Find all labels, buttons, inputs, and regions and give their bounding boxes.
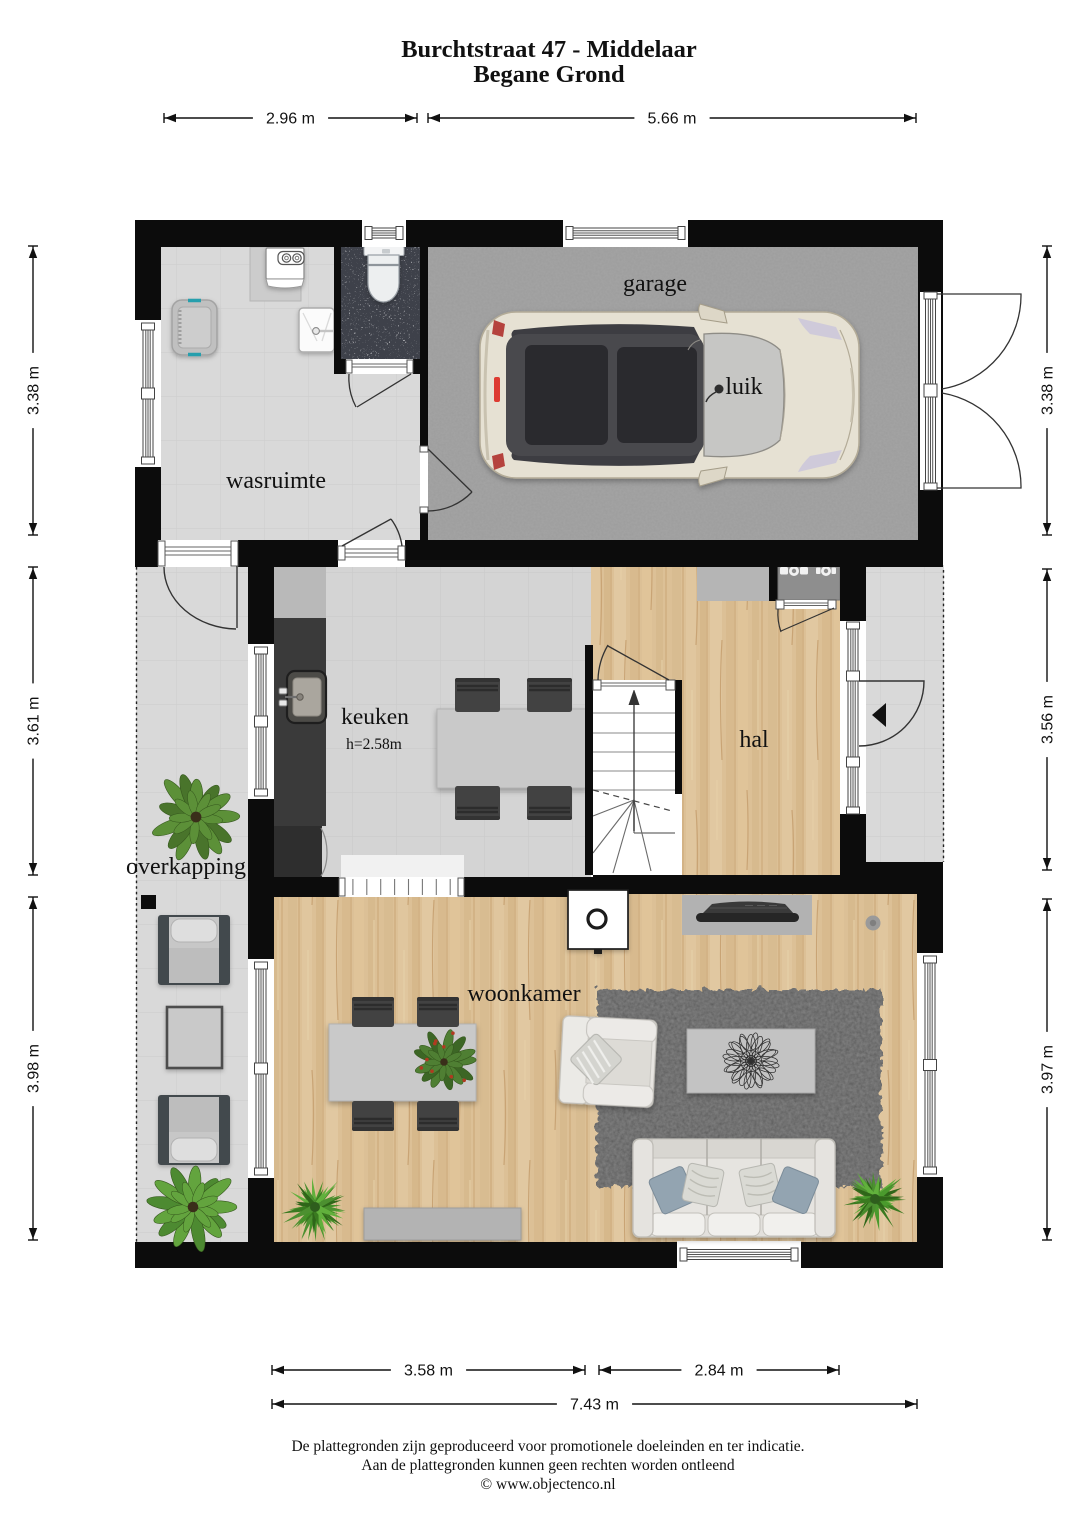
svg-text:h=2.58m: h=2.58m bbox=[346, 736, 402, 753]
svg-text:3.56 m: 3.56 m bbox=[1040, 695, 1057, 744]
svg-text:3.58 m: 3.58 m bbox=[404, 1363, 453, 1380]
svg-text:2.96 m: 2.96 m bbox=[266, 111, 315, 128]
svg-text:Burchtstraat 47 - Middelaar: Burchtstraat 47 - Middelaar bbox=[401, 36, 697, 63]
svg-text:3.97 m: 3.97 m bbox=[1040, 1045, 1057, 1094]
svg-text:3.38 m: 3.38 m bbox=[1040, 366, 1057, 415]
svg-text:© www.objectenco.nl: © www.objectenco.nl bbox=[480, 1476, 615, 1493]
svg-text:Aan de plattegronden kunnen ge: Aan de plattegronden kunnen geen rechten… bbox=[361, 1457, 734, 1474]
svg-text:woonkamer: woonkamer bbox=[467, 981, 580, 1007]
svg-text:overkapping: overkapping bbox=[126, 854, 246, 880]
svg-text:Begane Grond: Begane Grond bbox=[473, 61, 625, 88]
svg-text:luik: luik bbox=[725, 374, 762, 400]
svg-text:hal: hal bbox=[739, 727, 769, 753]
svg-text:2.84 m: 2.84 m bbox=[695, 1363, 744, 1380]
svg-text:5.66 m: 5.66 m bbox=[648, 111, 697, 128]
svg-text:7.43 m: 7.43 m bbox=[570, 1397, 619, 1414]
svg-text:3.38 m: 3.38 m bbox=[26, 366, 43, 415]
svg-text:keuken: keuken bbox=[341, 704, 409, 730]
svg-text:garage: garage bbox=[623, 271, 687, 297]
svg-text:De plattegronden zijn geproduc: De plattegronden zijn geproduceerd voor … bbox=[291, 1438, 804, 1455]
svg-text:wasruimte: wasruimte bbox=[226, 468, 326, 494]
svg-text:3.61 m: 3.61 m bbox=[26, 697, 43, 746]
svg-text:3.98 m: 3.98 m bbox=[26, 1044, 43, 1093]
